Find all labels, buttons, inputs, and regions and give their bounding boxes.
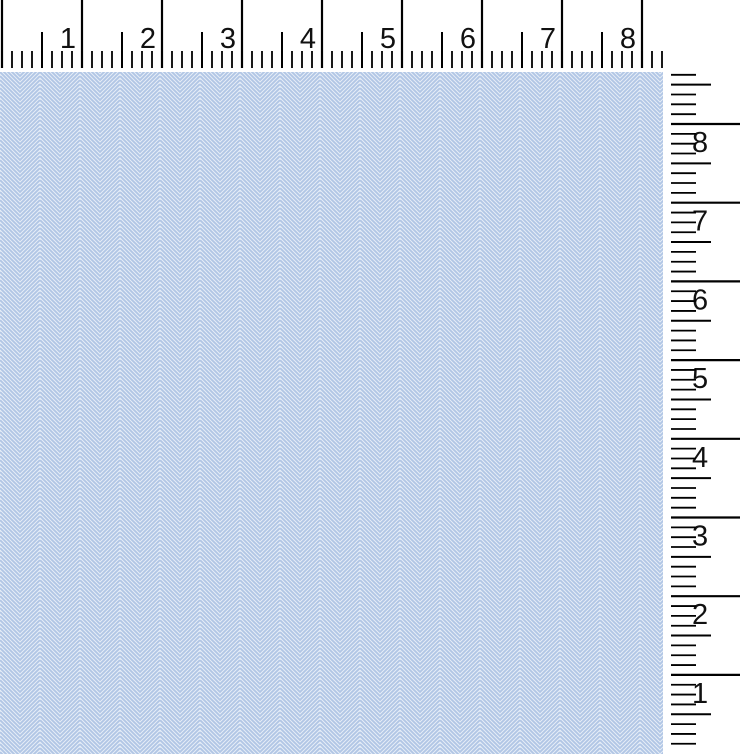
top-ruler-number: 7 (540, 23, 556, 55)
top-ruler-number: 4 (300, 23, 316, 55)
top-ruler-number: 3 (220, 23, 236, 55)
scene-canvas: 1234567887654321 (0, 0, 740, 754)
fabric-swatch (0, 72, 663, 754)
fabric-swatch-photo: 1234567887654321 (0, 0, 740, 754)
top-ruler-number: 6 (460, 23, 476, 55)
top-ruler-number: 1 (60, 23, 76, 55)
top-ruler-number: 8 (620, 23, 636, 55)
top-ruler-number: 2 (140, 23, 156, 55)
top-ruler-number: 5 (380, 23, 396, 55)
